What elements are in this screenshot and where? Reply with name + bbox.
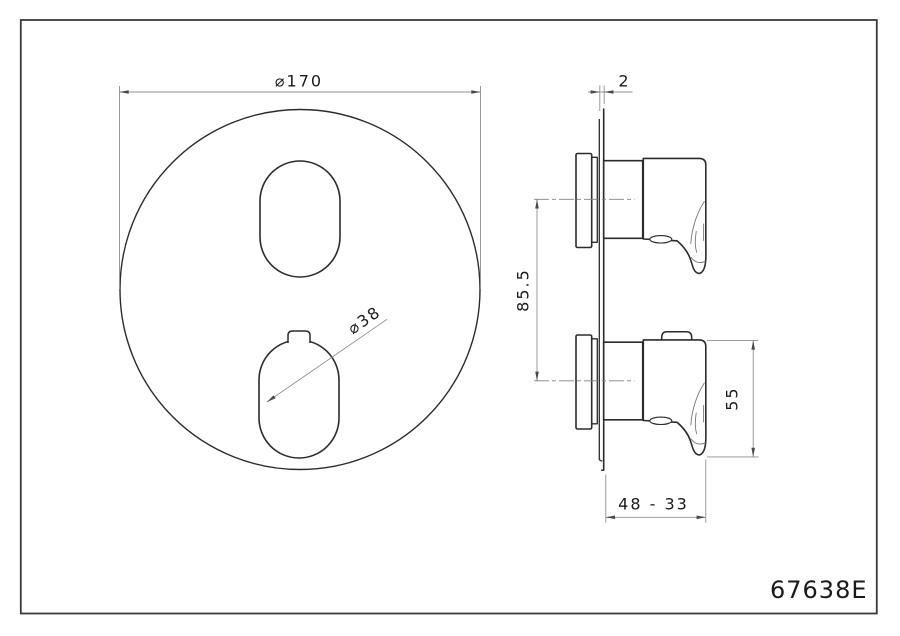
drawing-svg: ⌀170 ⌀38 <box>0 0 900 636</box>
dim-handle-height-label: 55 <box>723 386 742 410</box>
upper-valve-spacer <box>592 157 598 242</box>
dim-handle-spacing: 85.5 <box>514 199 539 380</box>
arrowhead <box>604 90 613 94</box>
dim-knob-diameter-label: ⌀38 <box>344 302 384 338</box>
lower-handle-tab <box>288 331 310 343</box>
dim-plate-thickness-extensions <box>600 86 604 112</box>
dim-plate-diameter-extensions <box>120 86 481 289</box>
arrowhead <box>591 90 600 94</box>
part-number: 67638E <box>770 576 868 604</box>
dim-knob-diameter-line <box>267 319 387 402</box>
arrowhead <box>751 448 755 457</box>
upper-valve-body <box>576 154 592 248</box>
lower-valve-spacer <box>592 339 598 424</box>
arrowhead <box>535 199 539 208</box>
dim-plate-diameter: ⌀170 <box>120 72 481 290</box>
dim-handle-height: 55 <box>707 340 759 457</box>
dim-knob-diameter-leader: ⌀38 <box>266 302 387 404</box>
dim-plate-thickness: 2 <box>588 72 633 112</box>
side-view: 2 85.5 55 48 - 33 <box>514 72 759 523</box>
front-view: ⌀170 ⌀38 <box>120 72 481 470</box>
arrowhead <box>471 90 480 94</box>
dim-handle-spacing-label: 85.5 <box>514 268 533 312</box>
upper-handle-underside-detail <box>650 236 672 243</box>
arrowhead <box>697 516 706 520</box>
arrowhead <box>535 372 539 381</box>
lower-valve-body <box>576 335 592 429</box>
dim-depth-range-label: 48 - 33 <box>618 495 689 514</box>
lower-handle-underside-detail <box>650 417 672 424</box>
faceplate-circle <box>120 110 480 470</box>
dim-plate-diameter-label: ⌀170 <box>275 72 323 91</box>
upper-knob-assembly <box>576 154 706 274</box>
arrowhead <box>751 340 755 349</box>
technical-drawing-canvas: ⌀170 ⌀38 <box>0 0 900 636</box>
arrowhead <box>120 90 129 94</box>
dim-depth-range: 48 - 33 <box>606 460 706 523</box>
lower-knob-assembly <box>576 332 706 455</box>
drawing-border <box>21 20 877 614</box>
upper-handle-outline <box>260 161 340 277</box>
dim-plate-thickness-label: 2 <box>618 72 630 91</box>
arrowhead <box>606 516 615 520</box>
